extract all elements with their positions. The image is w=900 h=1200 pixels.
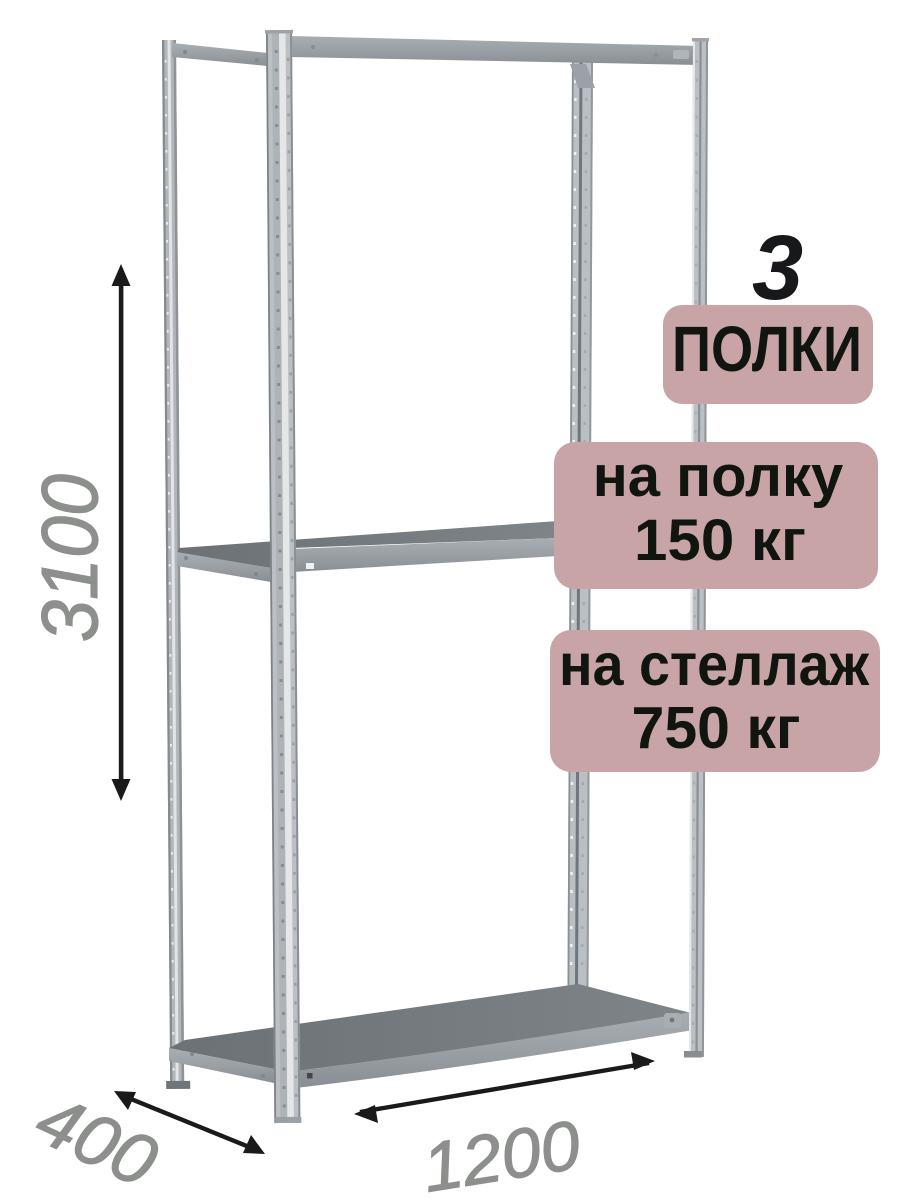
svg-text:3100: 3100 [25,474,114,642]
svg-text:750 кг: 750 кг [632,695,801,761]
svg-text:на стеллаж: на стеллаж [559,632,870,698]
svg-text:3: 3 [752,217,803,319]
svg-text:ПОЛКИ: ПОЛКИ [672,313,862,385]
svg-text:на полку: на полку [593,444,844,509]
svg-text:150 кг: 150 кг [634,508,806,573]
